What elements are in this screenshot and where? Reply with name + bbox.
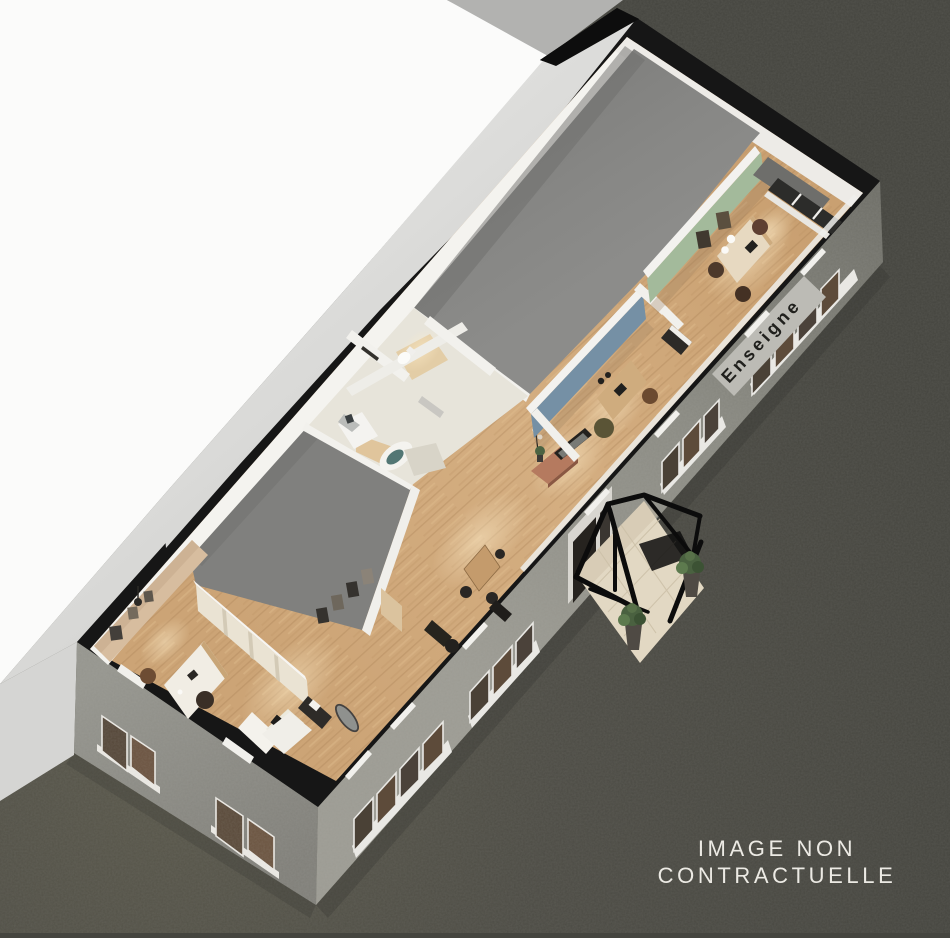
svg-text:CONTRACTUELLE: CONTRACTUELLE (658, 863, 897, 888)
svg-text:IMAGE NON: IMAGE NON (698, 836, 856, 861)
